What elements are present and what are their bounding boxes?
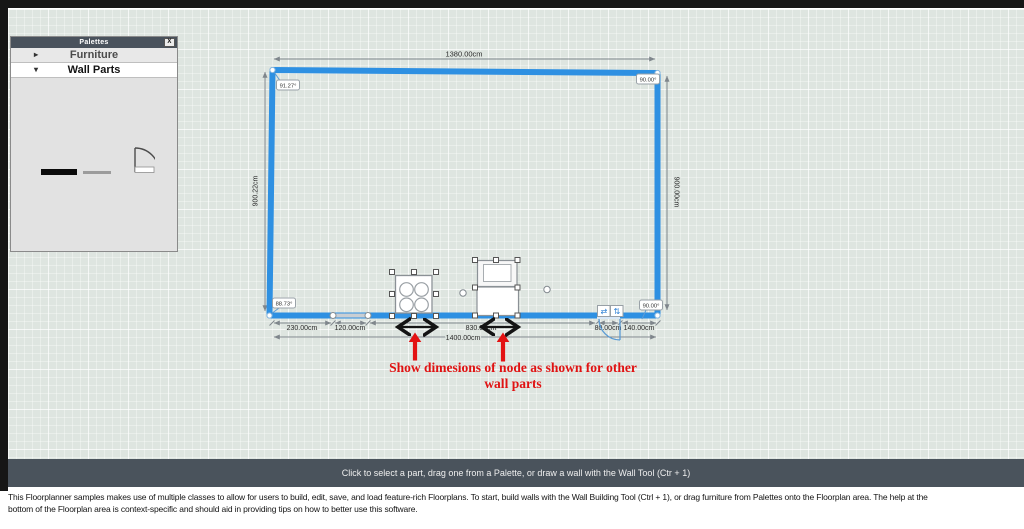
window-border-top [0, 0, 1024, 8]
chevron-down-icon[interactable]: ▾ [34, 63, 38, 77]
palette-item-door[interactable] [121, 145, 155, 177]
palettes-title-bar[interactable]: Palettes X [11, 37, 177, 48]
footer-help-text: This Floorplanner samples makes use of m… [8, 491, 1020, 515]
palette-item-thin-wall[interactable] [83, 171, 111, 174]
palette-item-wall[interactable] [41, 169, 77, 175]
annotation-note: Show dimesions of node as shown for othe… [380, 360, 646, 392]
chevron-right-icon[interactable]: ▸ [34, 48, 38, 62]
window-border-left [0, 8, 8, 491]
status-bar: Click to select a part, drag one from a … [8, 459, 1024, 487]
status-bar-message: Click to select a part, drag one from a … [342, 468, 690, 478]
palette-section-wall-parts[interactable]: ▾ Wall Parts [11, 63, 177, 78]
footer-line-1: This Floorplanner samples makes use of m… [8, 491, 1020, 503]
footer-line-2: bottom of the Floorplan area is context-… [8, 503, 1020, 515]
palette-section-furniture-label: Furniture [70, 49, 118, 61]
close-icon[interactable]: X [164, 38, 175, 47]
palette-section-furniture[interactable]: ▸ Furniture [11, 48, 177, 63]
door-leaf-icon [135, 167, 154, 173]
palette-section-wall-parts-label: Wall Parts [68, 64, 121, 76]
palettes-title: Palettes [79, 39, 108, 46]
palettes-panel: Palettes X ▸ Furniture ▾ Wall Parts [10, 36, 178, 252]
app-window: Palettes X ▸ Furniture ▾ Wall Parts [0, 0, 1024, 529]
